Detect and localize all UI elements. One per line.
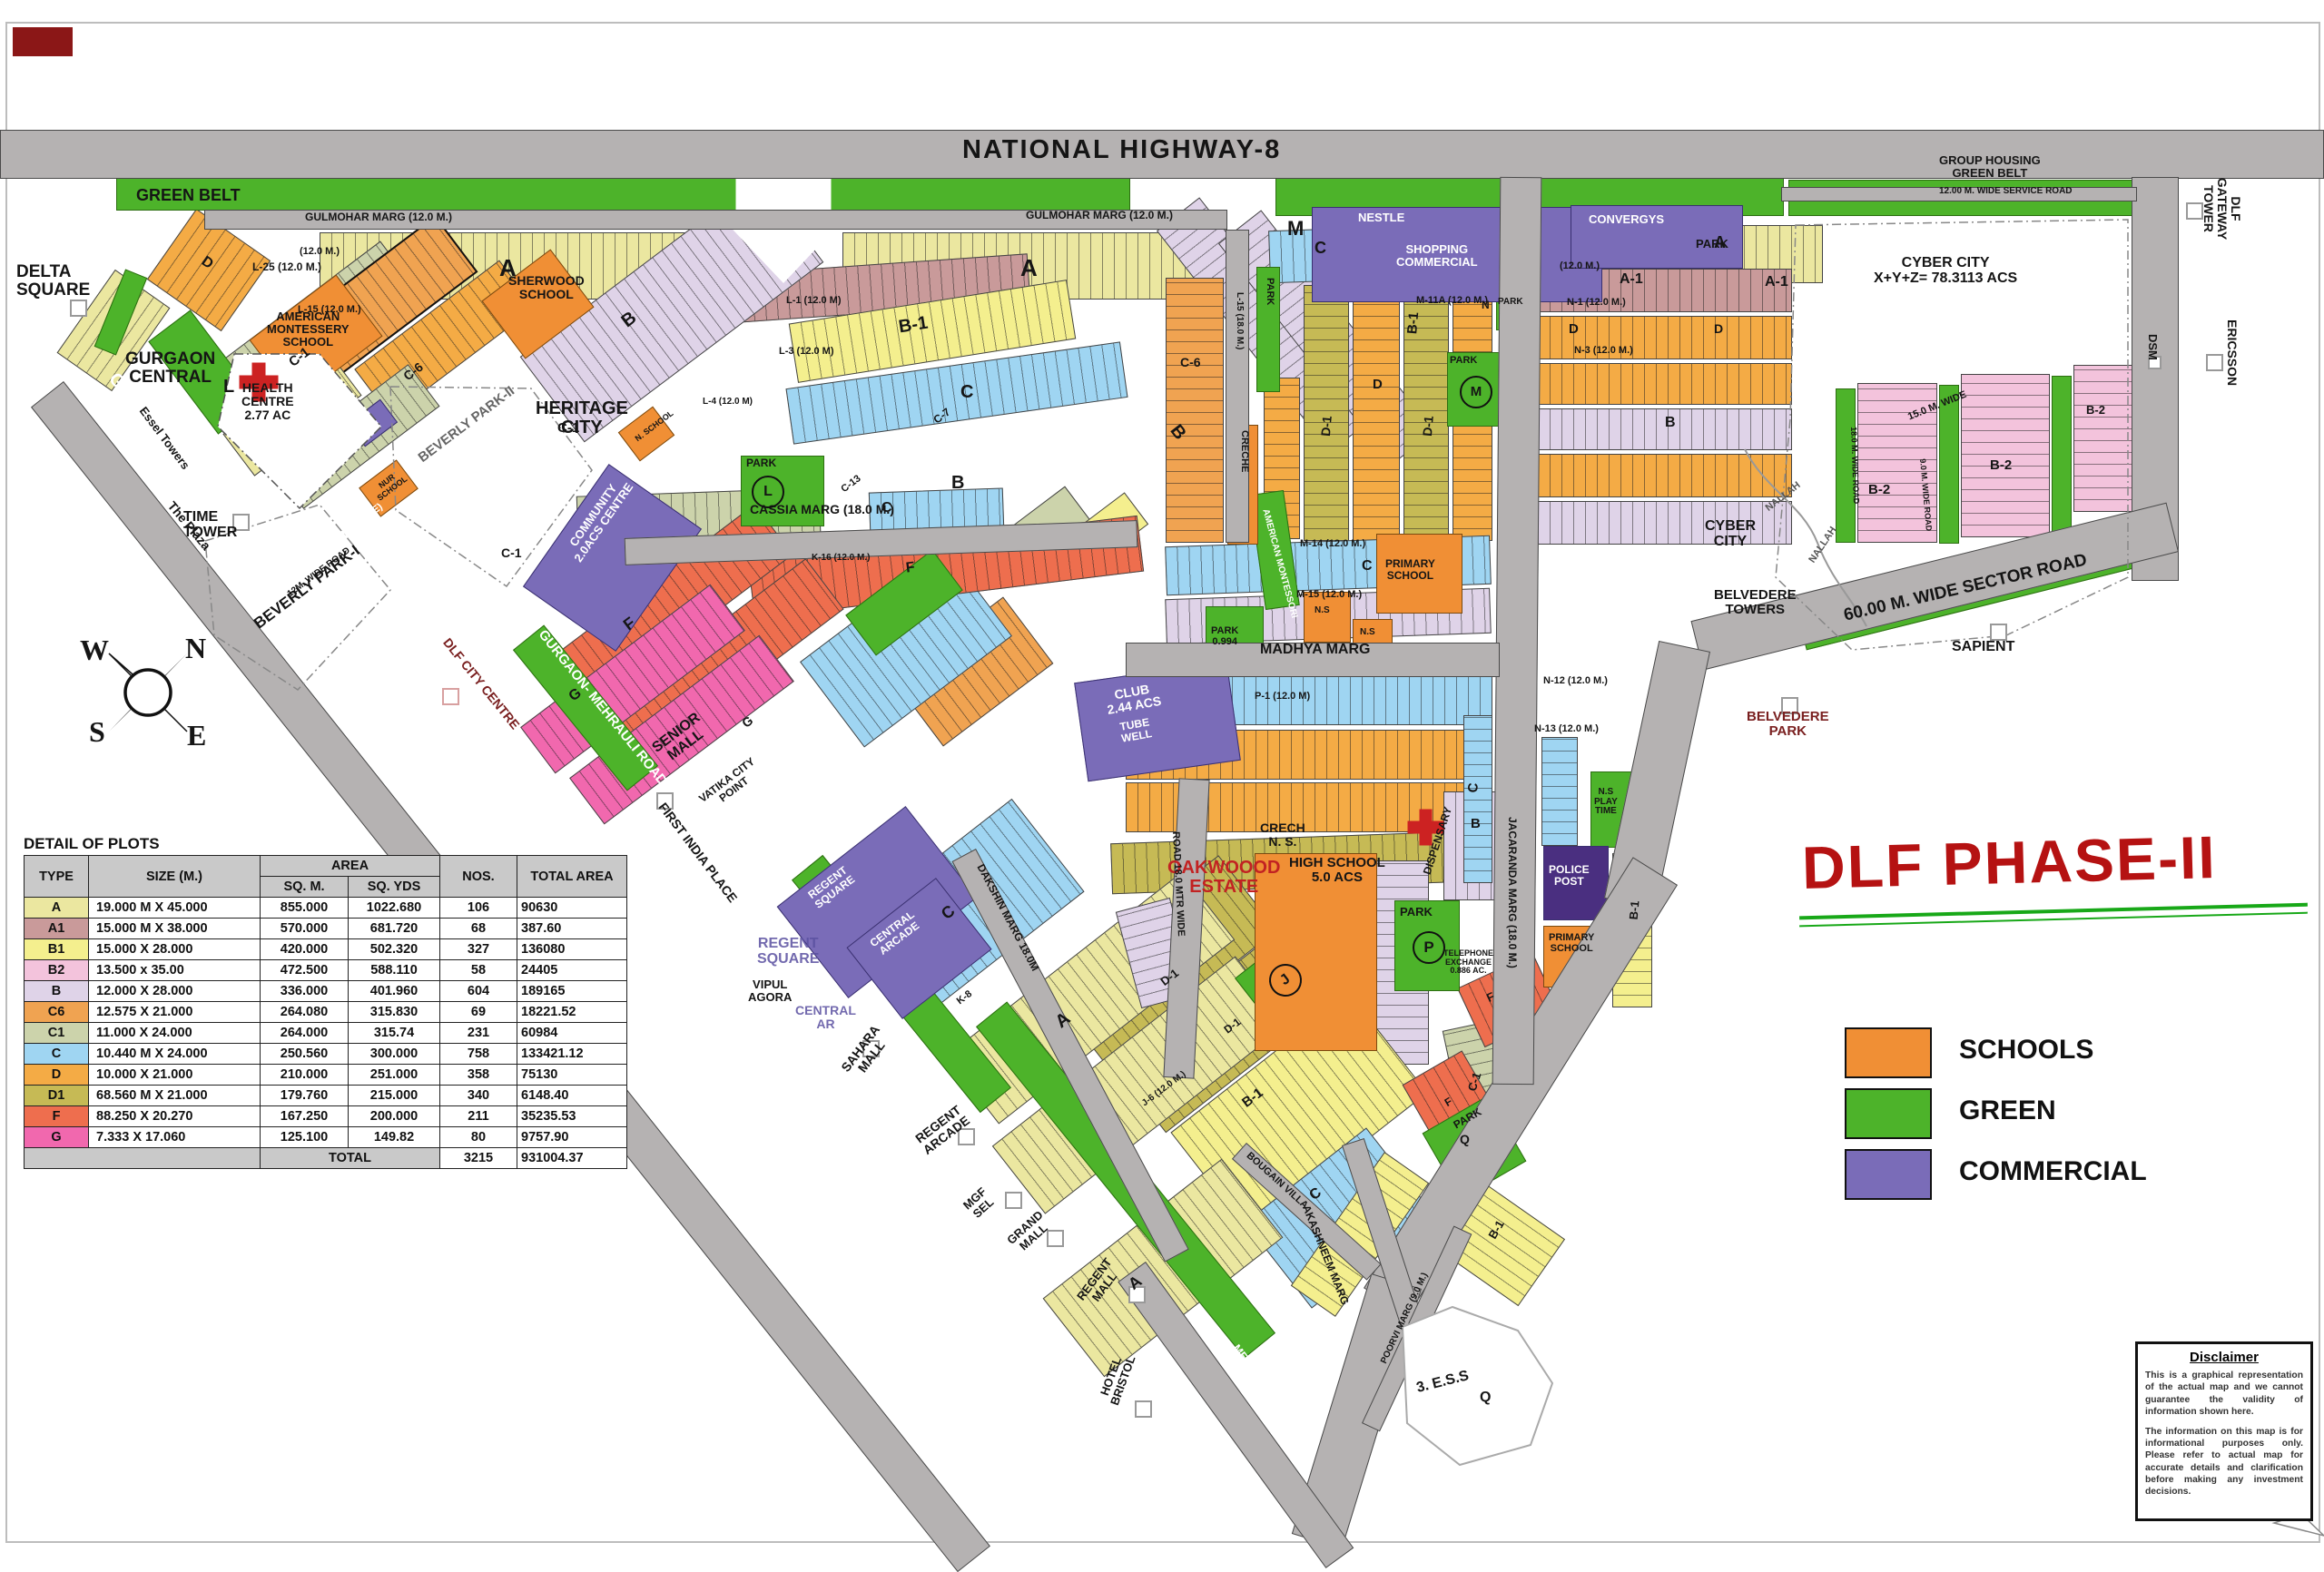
cell-sqyds: 215.000 [349, 1086, 440, 1106]
label-green-belt: GREEN BELT [136, 187, 241, 204]
label-nestle: NESTLE [1358, 211, 1404, 224]
label-block-b1: B-1 [1628, 900, 1642, 920]
label-l1: L-1 (12.0 M) [786, 296, 842, 307]
label-jacaranda-marg: JACARANDA MARG (18.0 M.) [1506, 817, 1518, 968]
cell-size: 10.000 X 21.000 [89, 1065, 261, 1086]
label-park-0994: PARK 0.994 [1211, 626, 1238, 647]
table-row: C612.575 X 21.000264.080315.8306918221.5… [25, 1002, 627, 1023]
compass-east: E [187, 721, 206, 752]
label-oakwood-estate: OAKWOOOD ESTATE [1167, 859, 1280, 897]
cell-total-label: TOTAL [261, 1148, 440, 1169]
label-n12: N-12 (12.0 M.) [1543, 676, 1608, 687]
label-block-c1: C-1 [557, 421, 579, 436]
mgf-marker [1005, 1192, 1022, 1209]
legend-swatch-green [1845, 1088, 1932, 1139]
label-block-a1: A-1 [1620, 272, 1643, 288]
dlf-gateway-marker [2186, 202, 2203, 220]
label-n1: N-1 (12.0 M.) [1567, 298, 1626, 309]
cell-type: G [25, 1127, 89, 1148]
label-park-l: PARK [746, 457, 776, 469]
cell-sqm: 855.000 [261, 898, 349, 919]
cell-nos: 69 [440, 1002, 517, 1023]
label-block-b: B [951, 474, 964, 493]
label-k16: K-16 (12.0 M.) [812, 554, 870, 564]
label-cyber-city-acs: CYBER CITY X+Y+Z= 78.3113 ACS [1874, 256, 2017, 287]
detail-of-plots-panel: DETAIL OF PLOTS TYPE SIZE (M.) AREA NOS.… [24, 835, 627, 1169]
label-gulmohar-marg: GULMOHAR MARG (12.0 M.) [305, 211, 452, 223]
cell-size: 15.000 X 28.000 [89, 939, 261, 960]
label-m15: M-15 (12.0 M.) [1296, 590, 1362, 601]
label-tube-well: TUBE WELL [1118, 716, 1153, 744]
label-primary-school-2: PRIMARY SCHOOL [1549, 933, 1594, 954]
label-block-c: C [960, 383, 973, 402]
cell-total: 90630 [517, 898, 627, 919]
cell-sqyds: 200.000 [349, 1106, 440, 1127]
cell-type: D1 [25, 1086, 89, 1106]
label-dlf-gateway-tower: DLF GATEWAY TOWER [2202, 168, 2242, 250]
cell-type: B2 [25, 960, 89, 981]
dlf-city-centre-marker [442, 688, 459, 705]
cell-total: 189165 [517, 981, 627, 1002]
cell-sqm: 472.500 [261, 960, 349, 981]
disclaimer-paragraph-2: The information on this map is for infor… [2145, 1426, 2303, 1498]
label-b2: B-2 [1868, 483, 1890, 497]
cell-total: 24405 [517, 960, 627, 981]
label-block-d1: D-1 [1421, 416, 1436, 437]
label-health-centre: HEALTH CENTRE 2.77 AC [241, 381, 294, 421]
label-ns-1: N.S [1315, 606, 1330, 616]
cell-size: 12.000 X 28.000 [89, 981, 261, 1002]
label-n3: N-3 (12.0 M.) [1574, 346, 1633, 357]
label-block-d: D [1569, 322, 1579, 337]
cell-size: 10.440 M X 24.000 [89, 1044, 261, 1065]
label-time-tower: TIME TOWER [183, 510, 237, 541]
label-l15: L-15 (12.0 M.) [298, 305, 361, 316]
label-ns-play-time: N.S PLAY TIME [1594, 788, 1618, 817]
cell-sqm: 210.000 [261, 1065, 349, 1086]
label-block-b: B [1665, 416, 1676, 431]
label-american-montessery-school: AMERICAN MONTESSERY SCHOOL [267, 310, 350, 348]
table-row: B213.500 x 35.00472.500588.1105824405 [25, 960, 627, 981]
label-park-m: PARK [1450, 356, 1477, 367]
cell-sqyds: 300.000 [349, 1044, 440, 1065]
cell-sqm: 125.100 [261, 1127, 349, 1148]
label-central-ar: CENTRAL AR [795, 1004, 856, 1031]
cell-type: B1 [25, 939, 89, 960]
label-shopping-commercial: SHOPPING COMMERCIAL [1396, 243, 1478, 269]
cell-nos: 604 [440, 981, 517, 1002]
hotel-bristol-marker [1135, 1400, 1152, 1418]
compass-south: S [89, 717, 105, 748]
cell-nos: 358 [440, 1065, 517, 1086]
label-dsm: DSM [2146, 334, 2159, 360]
label-p-circle: P [1413, 931, 1445, 964]
cell-size: 88.250 X 20.270 [89, 1106, 261, 1127]
map-overlay [0, 0, 2324, 1547]
cell-nos: 327 [440, 939, 517, 960]
label-sherwood-school: SHERWOOD SCHOOL [508, 274, 585, 301]
cell-sqyds: 315.74 [349, 1023, 440, 1044]
label-gulmohar-marg: GULMOHAR MARG (12.0 M.) [1026, 210, 1173, 221]
cell-nos: 80 [440, 1127, 517, 1148]
label-block-d: D [1373, 378, 1383, 392]
cell-nos: 68 [440, 919, 517, 939]
label-heritage-city: HERITAGE CITY [536, 399, 628, 437]
cell-type: D [25, 1065, 89, 1086]
label-q-sector: Q [1480, 1390, 1491, 1406]
label-block-q: Q [1460, 1133, 1470, 1146]
cell-sqyds: 1022.680 [349, 898, 440, 919]
label-block-c: C [1315, 240, 1326, 257]
label-group-housing-green-belt: GROUP HOUSING GREEN BELT [1939, 154, 2041, 180]
cell-total-nos: 3215 [440, 1148, 517, 1169]
cell-nos: 340 [440, 1086, 517, 1106]
col-header-total: TOTAL AREA [517, 856, 627, 898]
compass-west: W [80, 635, 109, 666]
label-block-c: C [1466, 782, 1482, 793]
label-telephone-exchange: TELEPHONE EXCHANGE 0.886 AC. [1443, 949, 1493, 976]
col-header-area: AREA [261, 856, 440, 877]
cell-type: F [25, 1106, 89, 1127]
label-belvedere-park: BELVEDERE PARK [1747, 710, 1829, 739]
label-block-c1: C-1 [501, 546, 522, 560]
label-block-a: A [1020, 256, 1038, 281]
cell-total: 60984 [517, 1023, 627, 1044]
cell-type: B [25, 981, 89, 1002]
cell-size: 13.500 x 35.00 [89, 960, 261, 981]
cell-nos: 106 [440, 898, 517, 919]
label-m11a: M-11A (12.0 M.) [1416, 296, 1488, 307]
table-row: A115.000 M X 38.000570.000681.72068387.6… [25, 919, 627, 939]
plots-table-title: DETAIL OF PLOTS [24, 835, 627, 853]
cell-type: C6 [25, 1002, 89, 1023]
legend-label-green: GREEN [1959, 1095, 2056, 1126]
cell-size: 12.575 X 21.000 [89, 1002, 261, 1023]
label-l25: L-25 (12.0 M.) [252, 261, 321, 273]
label-l4: L-4 (12.0 M) [703, 398, 753, 408]
label-regent-square: REGENT SQUARE [757, 937, 819, 968]
label-high-school: HIGH SCHOOL 5.0 ACS [1289, 856, 1385, 885]
label-b2: B-2 [2086, 404, 2105, 417]
red-cross-icons [240, 363, 1443, 845]
label-m-circle: M [1460, 376, 1492, 408]
label-primary-school-1: PRIMARY SCHOOL [1385, 558, 1435, 581]
label-gurgaon-central: GURGAON CENTRAL [125, 350, 215, 387]
label-l15-18m: L-15 (18.0 M.) [1234, 292, 1244, 349]
label-l3: L-3 (12.0 M) [779, 347, 834, 358]
cell-sqyds: 681.720 [349, 919, 440, 939]
cell-sqyds: 401.960 [349, 981, 440, 1002]
cell-size: 15.000 M X 38.000 [89, 919, 261, 939]
col-header-type: TYPE [25, 856, 89, 898]
table-row: G7.333 X 17.060125.100149.82809757.90 [25, 1127, 627, 1148]
label-p1: P-1 (12.0 M) [1255, 692, 1310, 702]
label-l-sector: L [223, 378, 234, 397]
compass-north: N [185, 634, 206, 664]
label-block-d: D [1714, 322, 1723, 336]
cell-sqyds: 315.830 [349, 1002, 440, 1023]
label-ns-2: N.S [1360, 628, 1375, 638]
col-header-sqm: SQ. M. [261, 877, 349, 898]
cell-size: 11.000 X 24.000 [89, 1023, 261, 1044]
label-n13: N-13 (12.0 M.) [1534, 724, 1599, 735]
col-header-sqyds: SQ. YDS [349, 877, 440, 898]
table-total-row: TOTAL 3215 931004.37 [25, 1148, 627, 1169]
label-block-c6: C-6 [1180, 356, 1201, 369]
cell-size: 68.560 M X 21.000 [89, 1086, 261, 1106]
cell-total: 6148.40 [517, 1086, 627, 1106]
cell-sqm: 167.250 [261, 1106, 349, 1127]
cell-total: 18221.52 [517, 1002, 627, 1023]
label-park-vertical: PARK [1264, 278, 1275, 305]
delta-square-marker [70, 300, 87, 317]
cell-total: 136080 [517, 939, 627, 960]
label-block-b1: B-1 [1405, 311, 1422, 334]
label-12m: (12.0 M.) [1560, 261, 1600, 272]
legend-label-commercial: COMMERCIAL [1959, 1156, 2147, 1187]
legend-label-schools: SCHOOLS [1959, 1035, 2093, 1066]
label-block-c: C [1362, 559, 1373, 575]
label-block-c: C [881, 501, 892, 516]
label-convergys: CONVERGYS [1589, 213, 1664, 226]
label-l-circle: L [752, 476, 784, 508]
label-madhya-marg: MADHYA MARG [1260, 643, 1370, 658]
label-block-a: A [499, 256, 517, 281]
cell-blank [25, 1148, 261, 1169]
label-block-a1: A-1 [1765, 275, 1788, 290]
label-cyber-city: CYBER CITY [1705, 519, 1756, 550]
cell-total: 133421.12 [517, 1044, 627, 1065]
cell-sqm: 264.000 [261, 1023, 349, 1044]
cell-sqyds: 588.110 [349, 960, 440, 981]
label-police-post: POLICE POST [1549, 864, 1590, 887]
table-row: D10.000 X 21.000210.000251.00035875130 [25, 1065, 627, 1086]
label-creche: CRECHE [1238, 430, 1249, 472]
disclaimer-box: Disclaimer This is a graphical represent… [2135, 1341, 2313, 1521]
cell-sqm: 570.000 [261, 919, 349, 939]
ericsson-marker [2206, 354, 2223, 371]
cell-sqm: 250.560 [261, 1044, 349, 1065]
label-block-b: B [1471, 817, 1481, 831]
label-service-road: 12.00 M. WIDE SERVICE ROAD [1939, 187, 2073, 197]
plots-table: TYPE SIZE (M.) AREA NOS. TOTAL AREA SQ. … [24, 855, 627, 1169]
table-row: D168.560 M X 21.000179.760215.0003406148… [25, 1086, 627, 1106]
cell-nos: 58 [440, 960, 517, 981]
cell-sqyds: 149.82 [349, 1127, 440, 1148]
cell-sqm: 179.760 [261, 1086, 349, 1106]
cell-size: 19.000 M X 45.000 [89, 898, 261, 919]
label-ericsson: ERICSSON [2225, 319, 2239, 386]
label-belvedere-towers: BELVEDERE TOWERS [1714, 588, 1797, 617]
cell-total: 387.60 [517, 919, 627, 939]
table-row: B12.000 X 28.000336.000401.960604189165 [25, 981, 627, 1002]
label-12m: (12.0 M.) [300, 247, 340, 258]
label-m-sector: M [1287, 218, 1304, 239]
table-row: F88.250 X 20.270167.250200.00021135235.5… [25, 1106, 627, 1127]
cell-type: C1 [25, 1023, 89, 1044]
compass-rose [109, 653, 187, 732]
cell-sqyds: 502.320 [349, 939, 440, 960]
table-row: A19.000 M X 45.000855.0001022.6801069063… [25, 898, 627, 919]
label-block-f: F [905, 560, 916, 576]
table-row: C111.000 X 24.000264.000315.7423160984 [25, 1023, 627, 1044]
disclaimer-paragraph-1: This is a graphical representation of th… [2145, 1370, 2303, 1419]
legend-swatch-schools [1845, 1027, 1932, 1078]
cell-type: A [25, 898, 89, 919]
cell-sqm: 336.000 [261, 981, 349, 1002]
cell-size: 7.333 X 17.060 [89, 1127, 261, 1148]
cell-total: 75130 [517, 1065, 627, 1086]
cell-type: A1 [25, 919, 89, 939]
cell-nos: 231 [440, 1023, 517, 1044]
cell-nos: 211 [440, 1106, 517, 1127]
label-18m-wide-road: 18.0 M. WIDE ROAD [1848, 427, 1859, 504]
page-title: DLF PHASE-II [1801, 822, 2218, 902]
cell-sqyds: 251.000 [349, 1065, 440, 1086]
label-park-p: PARK [1400, 906, 1433, 919]
col-header-size: SIZE (M.) [89, 856, 261, 898]
label-crech-ns: CRECH N. S. [1260, 821, 1305, 849]
label-block-a: A [1714, 234, 1726, 251]
label-m14: M-14 (12.0 M.) [1300, 539, 1365, 550]
cell-total-area: 931004.37 [517, 1148, 627, 1169]
legend-swatch-commercial [1845, 1149, 1932, 1200]
label-national-highway-8: NATIONAL HIGHWAY-8 [962, 136, 1281, 164]
label-park-n: PARK [1498, 298, 1523, 308]
cell-total: 35235.53 [517, 1106, 627, 1127]
grand-mall-marker [1047, 1230, 1064, 1247]
label-b2: B-2 [1990, 458, 2012, 473]
map-canvas: W N S E NATIONAL HIGHWAY-8 GREEN BELT GU… [0, 0, 2324, 1547]
col-header-nos: NOS. [440, 856, 517, 898]
label-block-d1: D-1 [1319, 416, 1334, 437]
table-row: C10.440 M X 24.000250.560300.00075813342… [25, 1044, 627, 1065]
disclaimer-title: Disclaimer [2145, 1350, 2303, 1365]
cell-type: C [25, 1044, 89, 1065]
cell-nos: 758 [440, 1044, 517, 1065]
cell-sqm: 264.080 [261, 1002, 349, 1023]
label-vipul-agora: VIPUL AGORA [748, 978, 792, 1004]
label-delta-square: DELTA SQUARE [16, 263, 90, 300]
label-sapient: SAPIENT [1952, 640, 2014, 655]
table-row: B115.000 X 28.000420.000502.320327136080 [25, 939, 627, 960]
cell-sqm: 420.000 [261, 939, 349, 960]
cell-total: 9757.90 [517, 1127, 627, 1148]
